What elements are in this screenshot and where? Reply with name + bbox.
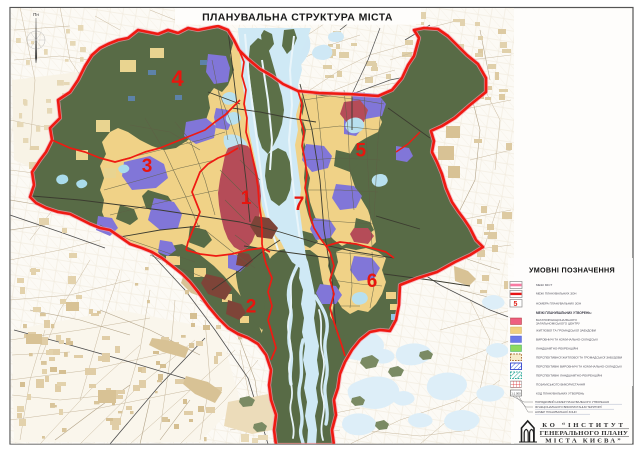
svg-text:3: 3 — [142, 156, 153, 177]
svg-text:ПЕРСПЕКТИВНОЇ ЖИТЛОВОЇ ТА ГРОМ: ПЕРСПЕКТИВНОЇ ЖИТЛОВОЇ ТА ГРОМАДСЬКОЇ ЗА… — [536, 356, 622, 360]
svg-text:5: 5 — [356, 141, 367, 162]
svg-text:6: 6 — [367, 271, 378, 292]
svg-text:ПОРЯДКОВИЙ НОМЕР ПЛАНУВАЛЬНОГ: ПОРЯДКОВИЙ НОМЕР ПЛАНУВАЛЬНОГО УТВОРЕННЯ — [535, 400, 609, 404]
svg-text:МЕЖІ МІСТ: МЕЖІ МІСТ — [536, 283, 552, 287]
svg-text:ГЕНЕРАЛЬНОГО ПЛАНУ: ГЕНЕРАЛЬНОГО ПЛАНУ — [540, 430, 629, 437]
svg-text:ПЛАНУВАЛЬНА СТРУКТУРА МІСТА: ПЛАНУВАЛЬНА СТРУКТУРА МІСТА — [202, 12, 393, 24]
svg-text:ПЕРСПЕКТИВНІ ЛАНДШАФТНО-РЕКРЕА: ПЕРСПЕКТИВНІ ЛАНДШАФТНО-РЕКРЕАЦІЙНІ — [536, 374, 602, 378]
svg-text:МЕЖІ ПЛАНУВАЛЬНИХ УТВОРЕНЬ:: МЕЖІ ПЛАНУВАЛЬНИХ УТВОРЕНЬ: — [536, 311, 592, 315]
svg-text:ЖИТЛОВОЇ ТА ГРОМАДСЬКОЇ ЗАБУДО: ЖИТЛОВОЇ ТА ГРОМАДСЬКОЇ ЗАБУДОВИ — [536, 329, 596, 333]
svg-text:ВИРОБНИЧІ ТА КОМУНАЛЬНО-СКЛАДС: ВИРОБНИЧІ ТА КОМУНАЛЬНО-СКЛАДСЬКІ — [536, 338, 598, 342]
svg-text:ФУНКЦІОНАЛЬНОГО ВИКОРИСТАННЯ Т: ФУНКЦІОНАЛЬНОГО ВИКОРИСТАННЯ ТЕРИТОРІЇ — [535, 405, 602, 409]
svg-text:1:1.000: 1:1.000 — [511, 392, 521, 396]
svg-text:7: 7 — [294, 194, 305, 215]
svg-text:МЕЖІ ПЛАНУВАЛЬНИХ ЗОН: МЕЖІ ПЛАНУВАЛЬНИХ ЗОН — [536, 292, 576, 296]
svg-text:ЗАГАЛЬНОМІСЬКОГО ЦЕНТРУ: ЗАГАЛЬНОМІСЬКОГО ЦЕНТРУ — [536, 322, 580, 326]
svg-text:Пн: Пн — [33, 12, 39, 17]
svg-text:УМОВНІ ПОЗНАЧЕННЯ: УМОВНІ ПОЗНАЧЕННЯ — [529, 266, 615, 275]
svg-text:МІСТА КИЄВА”: МІСТА КИЄВА” — [545, 438, 623, 445]
svg-text:НОМЕРА ПЛАНУВАЛЬНИХ ЗОН: НОМЕРА ПЛАНУВАЛЬНИХ ЗОН — [536, 302, 581, 306]
svg-text:1: 1 — [241, 188, 252, 209]
svg-text:4: 4 — [171, 66, 184, 91]
svg-text:КО “ІНСТИТУТ: КО “ІНСТИТУТ — [542, 422, 625, 429]
svg-text:5: 5 — [514, 301, 518, 308]
svg-text:ПОЗАМІСЬКОГО ВИКОРИСТАННЯ: ПОЗАМІСЬКОГО ВИКОРИСТАННЯ — [536, 383, 585, 387]
svg-text:ЛАНДШАФТНО-РЕКРЕАЦІЙНІ: ЛАНДШАФТНО-РЕКРЕАЦІЙНІ — [536, 347, 578, 351]
svg-text:2: 2 — [246, 297, 257, 318]
svg-text:ПЕРСПЕКТИВНІ ВИРОБНИЧІ ТА КОМУ: ПЕРСПЕКТИВНІ ВИРОБНИЧІ ТА КОМУНАЛЬНО-СКЛ… — [536, 365, 622, 369]
svg-text:КОД ПЛАНУВАЛЬНИХ УТВОРЕНЬ: КОД ПЛАНУВАЛЬНИХ УТВОРЕНЬ — [536, 392, 584, 396]
svg-text:НОМЕР ПЛАНУВАЛЬНОЇ ЗОНИ: НОМЕР ПЛАНУВАЛЬНОЇ ЗОНИ — [535, 410, 577, 414]
